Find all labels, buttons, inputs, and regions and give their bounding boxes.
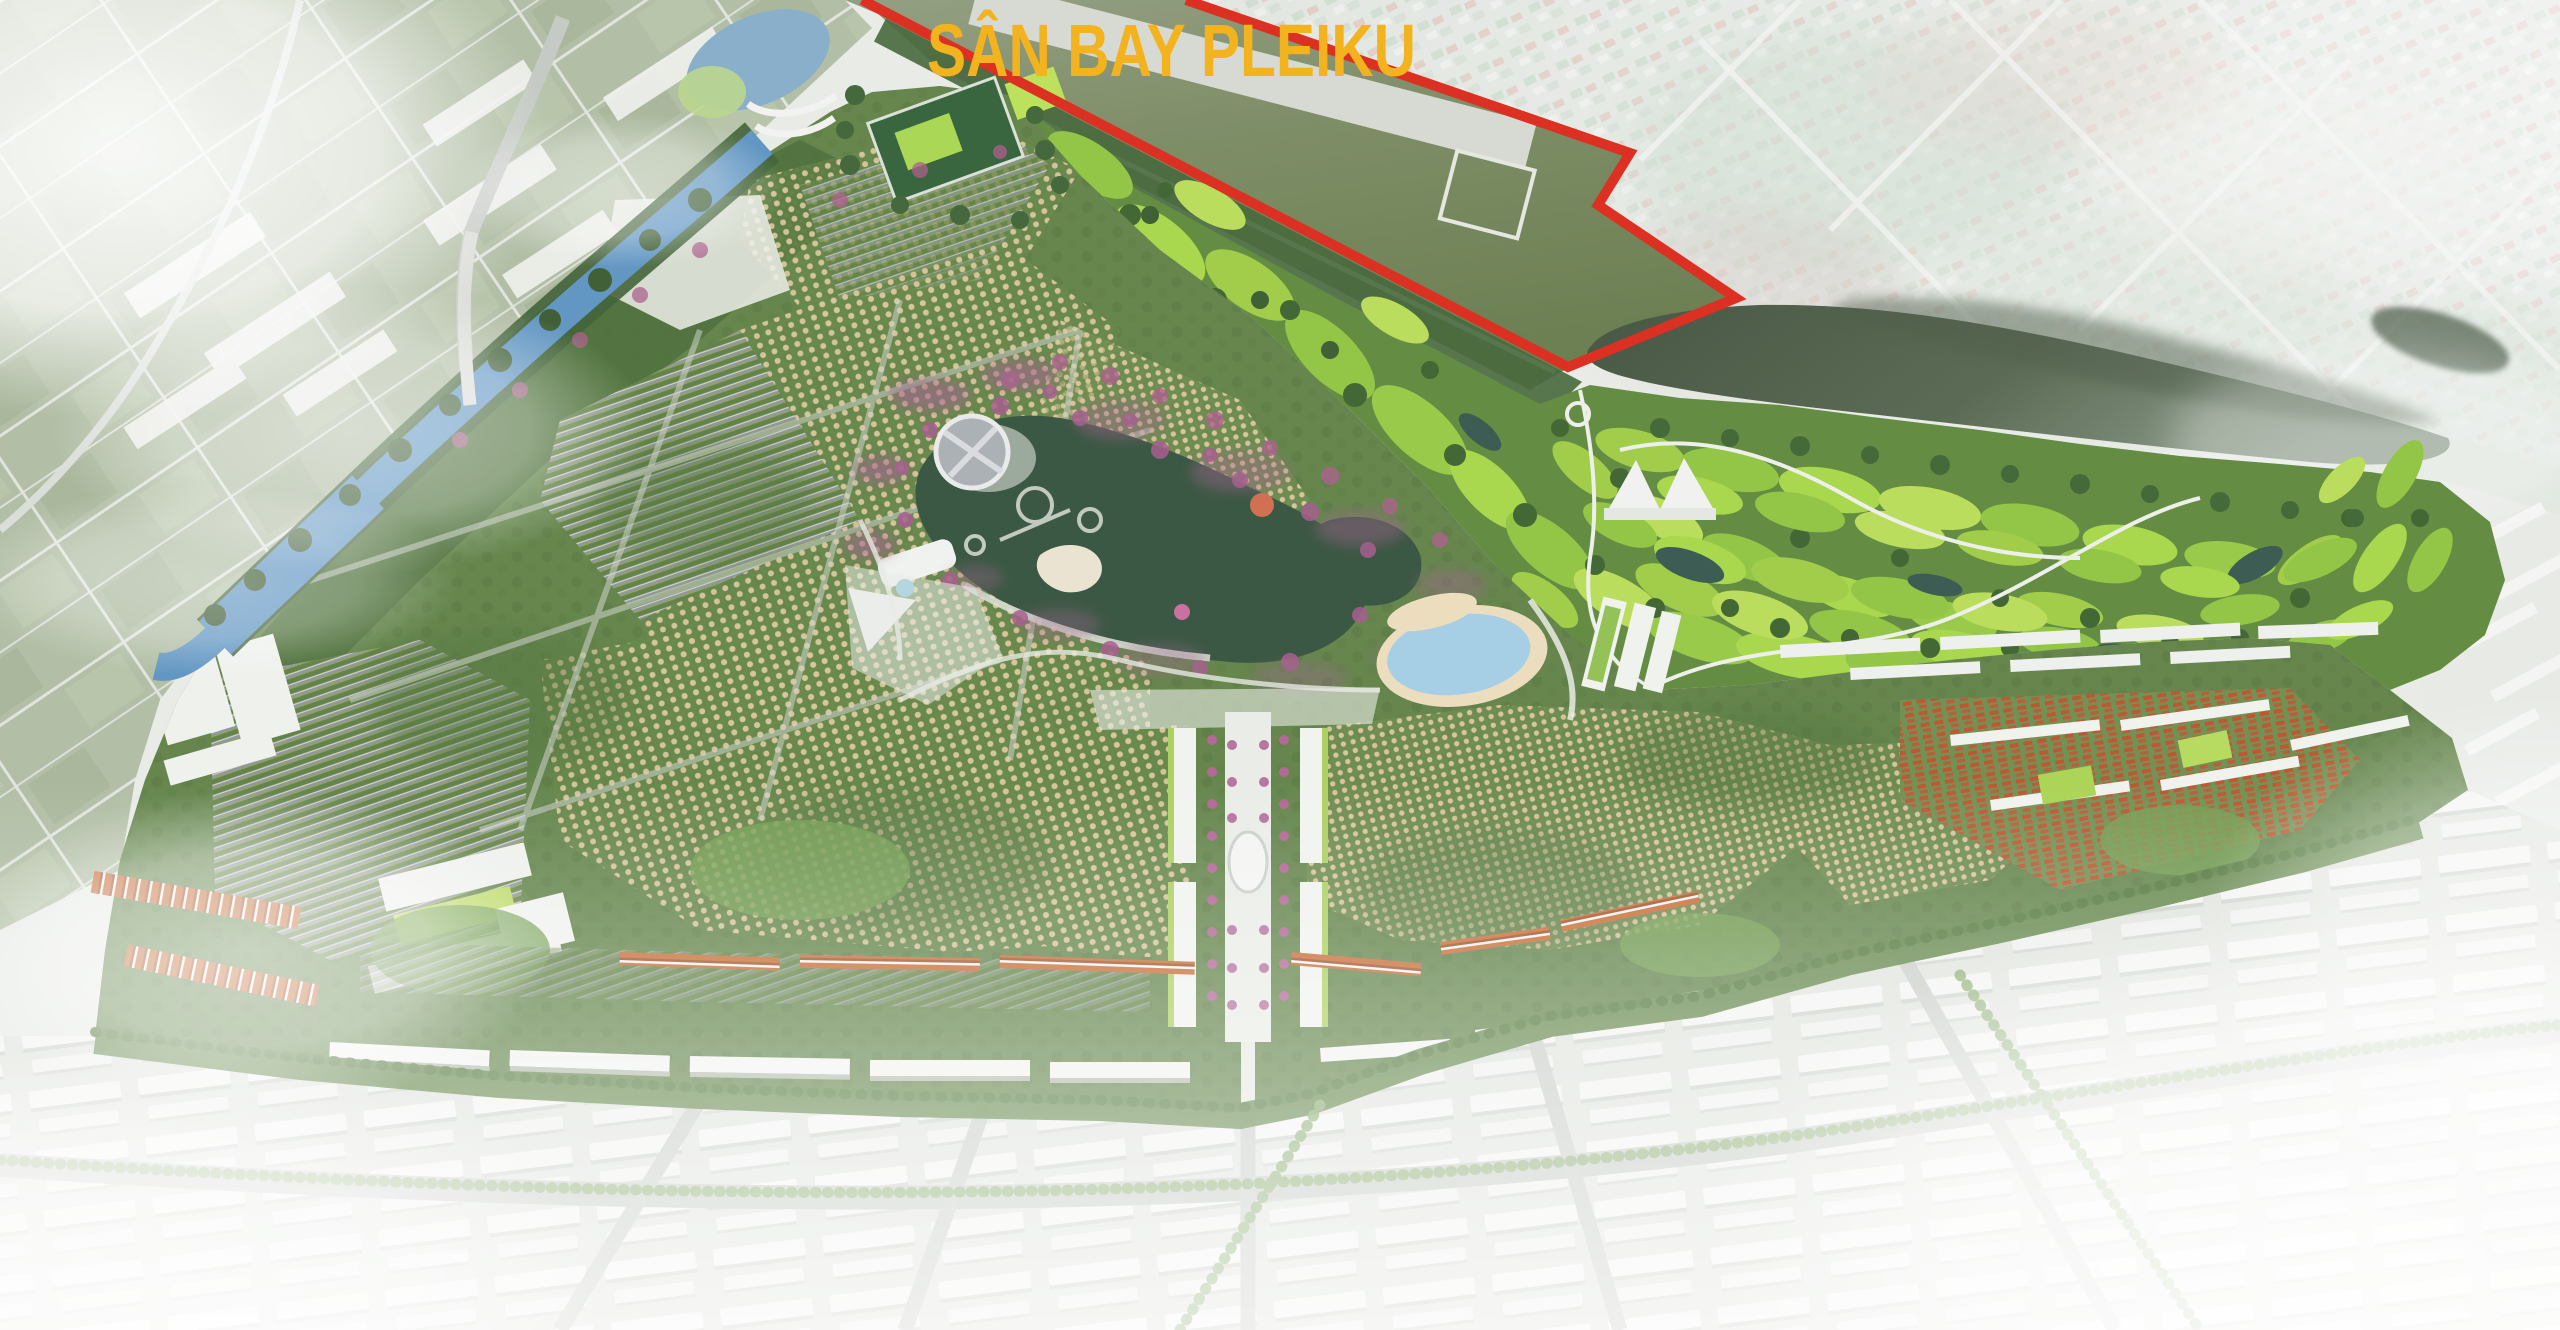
svg-text:SÂN BAY PLEIKU: SÂN BAY PLEIKU	[927, 9, 1416, 92]
